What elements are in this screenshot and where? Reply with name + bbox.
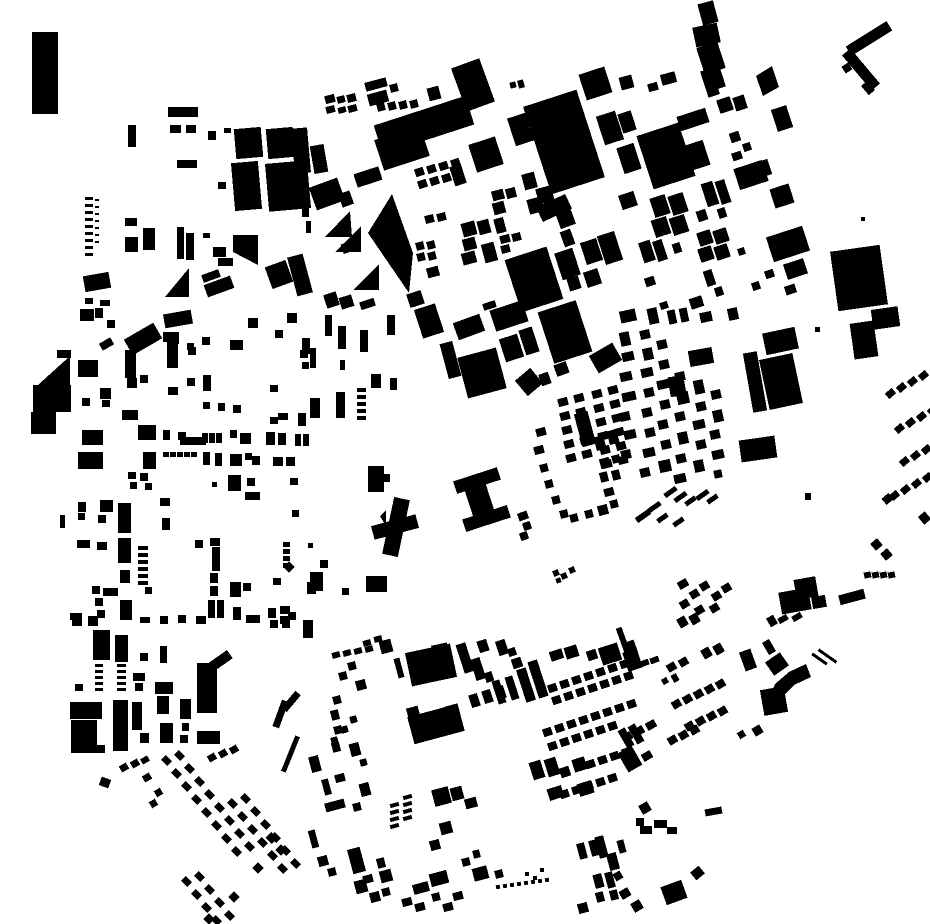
- building: [233, 607, 241, 620]
- building: [215, 453, 222, 466]
- building: [207, 650, 232, 672]
- building: [597, 431, 609, 441]
- building: [334, 773, 346, 783]
- building: [117, 664, 126, 667]
- building: [230, 430, 237, 438]
- building: [561, 425, 573, 435]
- building: [317, 855, 329, 867]
- building: [880, 548, 893, 561]
- building: [163, 310, 193, 329]
- building: [323, 291, 340, 308]
- building: [243, 583, 251, 591]
- building: [607, 773, 618, 783]
- building: [696, 229, 714, 247]
- building: [540, 868, 544, 872]
- building: [551, 695, 562, 705]
- map-canvas: [0, 0, 930, 924]
- building: [880, 571, 888, 578]
- building: [607, 721, 618, 731]
- building: [163, 430, 170, 440]
- building: [565, 453, 577, 463]
- building: [660, 439, 672, 450]
- building: [133, 673, 145, 681]
- building: [95, 308, 103, 318]
- building: [320, 560, 328, 568]
- building: [414, 167, 425, 177]
- building: [505, 187, 517, 199]
- building: [283, 542, 290, 547]
- building: [283, 556, 290, 561]
- building: [663, 486, 677, 498]
- building: [805, 493, 811, 500]
- building: [140, 653, 148, 661]
- building: [342, 588, 349, 595]
- building: [83, 272, 111, 292]
- building: [693, 459, 705, 473]
- building: [714, 286, 724, 297]
- building: [737, 730, 747, 740]
- building: [307, 582, 316, 594]
- building: [507, 647, 517, 657]
- building: [689, 588, 701, 599]
- building: [371, 374, 381, 388]
- building: [658, 359, 670, 370]
- building: [552, 569, 560, 577]
- building: [93, 630, 110, 660]
- building: [689, 295, 705, 309]
- building: [140, 375, 148, 383]
- building: [452, 891, 464, 901]
- building: [95, 676, 103, 679]
- building: [453, 314, 485, 340]
- building: [138, 546, 148, 550]
- building: [649, 656, 660, 665]
- building: [519, 531, 529, 541]
- building: [140, 733, 149, 743]
- building: [414, 902, 426, 912]
- building: [711, 590, 723, 601]
- building: [544, 479, 554, 489]
- building: [324, 94, 336, 104]
- building: [659, 301, 669, 310]
- building: [283, 549, 290, 554]
- building: [525, 872, 529, 876]
- building: [667, 827, 677, 834]
- building: [117, 688, 126, 691]
- building: [338, 326, 346, 349]
- building: [178, 615, 186, 623]
- building: [405, 644, 457, 687]
- building: [359, 298, 376, 310]
- building: [762, 327, 799, 355]
- building: [212, 563, 220, 571]
- building: [613, 427, 625, 437]
- building: [905, 417, 916, 428]
- building: [732, 94, 748, 111]
- building: [660, 880, 687, 905]
- building: [162, 518, 170, 530]
- building: [793, 576, 818, 600]
- building: [661, 677, 669, 685]
- building: [85, 197, 93, 200]
- building: [531, 880, 536, 885]
- building: [672, 517, 685, 528]
- building: [321, 778, 332, 795]
- building: [160, 646, 167, 663]
- building: [357, 395, 366, 399]
- building: [712, 642, 725, 655]
- building: [234, 127, 264, 159]
- building: [201, 902, 212, 913]
- building: [95, 220, 99, 222]
- building: [98, 515, 106, 523]
- building: [357, 416, 366, 420]
- building: [338, 671, 348, 681]
- building: [118, 503, 131, 533]
- building: [97, 745, 105, 753]
- building: [711, 449, 725, 460]
- building: [766, 615, 778, 628]
- building: [260, 819, 271, 830]
- building: [387, 315, 395, 335]
- building: [266, 432, 275, 445]
- building: [77, 540, 90, 548]
- building: [194, 776, 205, 787]
- building: [95, 234, 99, 236]
- building: [248, 318, 258, 328]
- building: [191, 889, 202, 900]
- building: [180, 699, 191, 719]
- building: [337, 106, 346, 114]
- building: [468, 693, 481, 708]
- building: [607, 663, 618, 673]
- building: [125, 350, 136, 378]
- building: [599, 679, 610, 689]
- building: [658, 459, 672, 473]
- building: [667, 192, 688, 216]
- building: [32, 32, 58, 114]
- building: [916, 411, 927, 422]
- building: [614, 703, 625, 713]
- building: [695, 401, 707, 412]
- building: [673, 491, 687, 503]
- building: [424, 214, 435, 224]
- building: [538, 300, 593, 364]
- building: [517, 79, 525, 88]
- building: [888, 571, 896, 578]
- building: [210, 573, 218, 583]
- building: [499, 334, 524, 363]
- building: [217, 600, 224, 618]
- building: [97, 610, 105, 618]
- building: [762, 639, 776, 655]
- building: [676, 391, 690, 405]
- building: [203, 375, 211, 391]
- building: [609, 499, 619, 509]
- building: [481, 689, 494, 704]
- building: [125, 237, 138, 252]
- building: [295, 434, 301, 446]
- building: [751, 724, 763, 736]
- building: [529, 760, 546, 781]
- building: [461, 250, 478, 265]
- building: [85, 218, 93, 221]
- building: [224, 128, 231, 133]
- building: [115, 635, 128, 662]
- building: [228, 475, 241, 491]
- building: [357, 409, 366, 413]
- building: [174, 750, 185, 761]
- building: [476, 219, 491, 236]
- building: [870, 538, 883, 551]
- building: [160, 616, 168, 624]
- building: [78, 360, 98, 377]
- building: [142, 772, 152, 782]
- building: [864, 571, 872, 578]
- building: [95, 664, 103, 667]
- building: [641, 407, 653, 418]
- building: [390, 823, 400, 829]
- building: [739, 649, 757, 672]
- building: [639, 659, 650, 668]
- building: [505, 247, 564, 313]
- building: [721, 582, 733, 593]
- building: [710, 389, 722, 400]
- building: [910, 450, 921, 461]
- building: [571, 675, 582, 685]
- building: [623, 429, 637, 440]
- building: [595, 891, 605, 903]
- building: [690, 866, 705, 881]
- building: [759, 353, 803, 410]
- building: [95, 206, 99, 208]
- building: [140, 755, 150, 764]
- building: [107, 320, 115, 328]
- building: [777, 614, 789, 624]
- building: [716, 96, 734, 114]
- building: [359, 758, 368, 767]
- building: [900, 484, 911, 495]
- building: [390, 816, 400, 822]
- building: [636, 818, 644, 826]
- building: [216, 433, 222, 443]
- building: [237, 811, 248, 822]
- building: [640, 826, 652, 834]
- building: [481, 242, 498, 264]
- building: [559, 766, 572, 779]
- building: [165, 268, 189, 297]
- building: [591, 389, 603, 399]
- building: [85, 204, 93, 207]
- building: [436, 212, 447, 222]
- building: [619, 308, 637, 323]
- building: [607, 385, 619, 395]
- building: [706, 494, 719, 505]
- building: [511, 657, 524, 670]
- building: [712, 227, 730, 245]
- building: [310, 348, 316, 368]
- building: [303, 434, 309, 446]
- building: [429, 870, 450, 887]
- building: [729, 131, 742, 144]
- building: [275, 330, 283, 338]
- building: [559, 737, 570, 747]
- building: [167, 360, 178, 368]
- building: [138, 425, 156, 440]
- building: [308, 543, 313, 548]
- building: [560, 572, 568, 580]
- building: [138, 574, 148, 578]
- building: [861, 217, 865, 221]
- building: [125, 218, 137, 226]
- building: [559, 679, 570, 689]
- building: [704, 683, 716, 694]
- building: [638, 801, 652, 815]
- building: [306, 221, 311, 233]
- building: [765, 652, 789, 675]
- building: [713, 243, 731, 261]
- building: [644, 276, 656, 288]
- building: [656, 339, 668, 350]
- building: [387, 101, 397, 111]
- building: [885, 388, 896, 399]
- building: [521, 172, 538, 191]
- building: [186, 125, 196, 133]
- building: [595, 667, 606, 677]
- building: [791, 612, 803, 622]
- building: [210, 586, 218, 596]
- building: [697, 245, 715, 263]
- building: [611, 675, 622, 685]
- building: [229, 744, 239, 754]
- building: [310, 144, 329, 174]
- building: [495, 639, 509, 656]
- building: [140, 617, 150, 623]
- building: [553, 361, 569, 377]
- building: [331, 651, 340, 659]
- building: [298, 413, 306, 426]
- building: [494, 685, 507, 700]
- building: [659, 399, 671, 410]
- building: [672, 242, 683, 254]
- building: [283, 563, 290, 568]
- building: [577, 902, 589, 914]
- building: [899, 456, 910, 467]
- building: [85, 298, 93, 304]
- building: [472, 849, 481, 859]
- building: [554, 248, 581, 281]
- building: [609, 751, 620, 761]
- building: [80, 309, 94, 321]
- building: [597, 755, 608, 765]
- building: [120, 570, 130, 583]
- building: [181, 781, 192, 792]
- building: [517, 882, 522, 887]
- building: [494, 869, 504, 879]
- building: [830, 245, 888, 311]
- building: [327, 867, 337, 877]
- building: [149, 799, 159, 809]
- building: [602, 707, 613, 717]
- building: [100, 388, 111, 399]
- building: [188, 347, 196, 355]
- building: [460, 220, 477, 237]
- building: [675, 453, 687, 464]
- building: [674, 411, 686, 422]
- building: [509, 81, 516, 88]
- building: [709, 429, 721, 440]
- building: [538, 879, 543, 884]
- building: [99, 337, 114, 350]
- building: [224, 815, 235, 826]
- building: [191, 794, 202, 805]
- building: [122, 410, 138, 420]
- building: [595, 725, 606, 735]
- building: [338, 294, 354, 309]
- building: [231, 846, 242, 857]
- building: [559, 411, 571, 421]
- building: [347, 661, 357, 671]
- building: [450, 786, 465, 802]
- building: [203, 452, 210, 465]
- building: [120, 600, 132, 620]
- building: [140, 473, 148, 481]
- building: [573, 393, 585, 403]
- building: [201, 807, 212, 818]
- building: [117, 682, 126, 685]
- building: [270, 620, 278, 628]
- building: [426, 240, 436, 250]
- building: [230, 454, 242, 466]
- building: [636, 123, 695, 190]
- building: [128, 125, 136, 147]
- building: [118, 538, 131, 563]
- building: [252, 456, 260, 465]
- building: [673, 473, 687, 484]
- building: [245, 453, 252, 460]
- building: [645, 719, 658, 731]
- building: [357, 402, 366, 406]
- building: [872, 571, 880, 578]
- building: [771, 105, 793, 132]
- building: [587, 683, 598, 693]
- building: [656, 513, 669, 524]
- building: [92, 586, 100, 594]
- building: [700, 646, 713, 659]
- building: [647, 82, 659, 92]
- building: [742, 142, 752, 152]
- building: [456, 642, 475, 674]
- building: [896, 382, 907, 393]
- building: [95, 199, 99, 201]
- building: [769, 183, 794, 208]
- building: [234, 828, 245, 839]
- building: [364, 77, 388, 91]
- building: [204, 884, 215, 895]
- building: [907, 376, 918, 387]
- building: [922, 472, 930, 483]
- building: [353, 647, 362, 655]
- building: [231, 161, 262, 211]
- building: [357, 388, 366, 392]
- building: [325, 211, 352, 237]
- building: [95, 213, 99, 215]
- building: [571, 756, 587, 772]
- building: [95, 241, 99, 243]
- building: [95, 688, 103, 691]
- building: [504, 675, 519, 700]
- building: [555, 577, 561, 583]
